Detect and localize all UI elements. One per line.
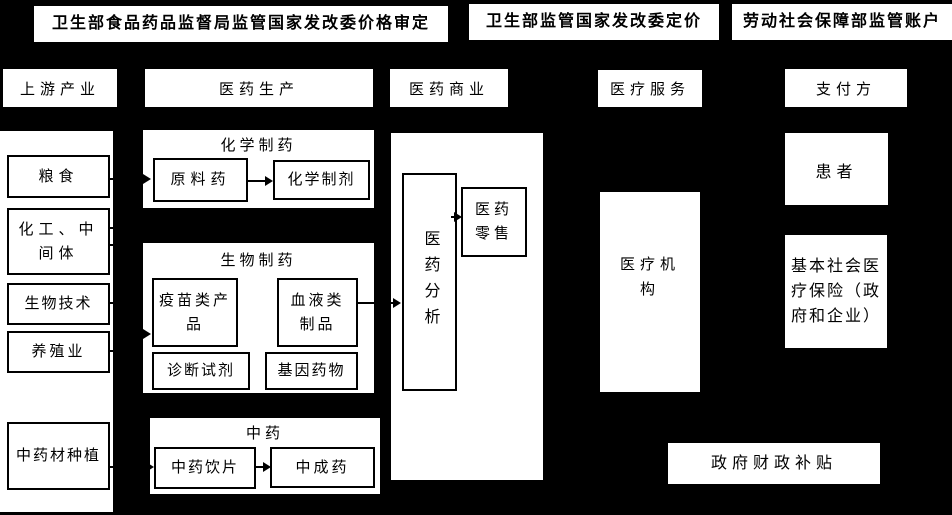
stage-header-medical-service: 医疗服务 <box>598 70 702 107</box>
upstream-box-tcm-planting: 中药材种植 <box>7 422 110 490</box>
arrowhead-pieces-to-patent <box>263 462 271 472</box>
arrowhead-api-to-preparation <box>265 176 273 186</box>
arrowhead-planting-to-pieces <box>146 462 154 472</box>
stage-header-production: 医药生产 <box>145 69 373 107</box>
regulator-box-price-approval: 卫生部食品药品监督局监管国家发改委价格审定 <box>32 4 450 44</box>
upstream-box-farming: 养殖业 <box>7 331 110 373</box>
arrowhead-into-biological-panel <box>143 329 151 339</box>
arrow-blood-to-analysis <box>358 302 394 304</box>
arrowhead-blood-to-analysis <box>393 298 401 308</box>
industry-chain-diagram: 卫生部食品药品监督局监管国家发改委价格审定 卫生部监管国家发改委定价 劳动社会保… <box>0 0 952 515</box>
upstream-box-biotech: 生物技术 <box>7 283 110 325</box>
upstream-box-chemical-intermediates: 化工、中间体 <box>7 208 110 275</box>
subsidy-box: 政府财政补贴 <box>668 443 880 484</box>
box-pharma-retail: 医药零售 <box>461 187 527 257</box>
box-pharma-analysis: 医药分析 <box>402 173 457 391</box>
upstream-box-grain: 粮食 <box>7 155 110 198</box>
connector-chemical-intermediates-1 <box>108 227 118 229</box>
regulator-box-ndrc-pricing: 卫生部监管国家发改委定价 <box>467 2 721 42</box>
regulator-box-social-security-account: 劳动社会保障部监管账户 <box>730 2 952 42</box>
connector-farming <box>108 350 118 352</box>
box-tcm-pieces: 中药饮片 <box>154 447 256 489</box>
box-tcm-patent-drug: 中成药 <box>270 447 375 488</box>
connector-chemical-intermediates-2 <box>108 244 118 246</box>
patient-label: 患者 <box>785 160 888 185</box>
box-diagnostic-reagents: 诊断试剂 <box>152 352 250 390</box>
arrowhead-analysis-to-retail <box>454 212 462 222</box>
arrow-grain-to-chemical <box>108 178 148 180</box>
pharma-analysis-label: 医药分析 <box>422 230 438 334</box>
arrowhead-grain-to-chemical <box>143 174 151 184</box>
box-gene-drugs: 基因药物 <box>265 352 358 390</box>
chemical-pharma-title: 化学制药 <box>143 134 374 155</box>
stage-header-commerce: 医药商业 <box>390 69 508 107</box>
connector-biotech <box>108 302 118 304</box>
box-vaccines: 疫苗类产品 <box>152 278 238 347</box>
stage-header-upstream: 上游产业 <box>3 69 117 107</box>
hospital-label: 医疗机构 <box>618 248 682 308</box>
box-api: 原料药 <box>153 158 248 202</box>
biological-pharma-title: 生物制药 <box>143 249 374 270</box>
box-blood-products: 血液类制品 <box>277 278 358 347</box>
stage-header-payer: 支付方 <box>785 69 907 107</box>
tcm-title: 中药 <box>150 422 380 443</box>
insurance-label: 基本社会医疗保险（政府和企业） <box>789 240 883 343</box>
arrow-planting-to-pieces <box>108 466 148 468</box>
box-chemical-preparation: 化学制剂 <box>273 160 370 200</box>
